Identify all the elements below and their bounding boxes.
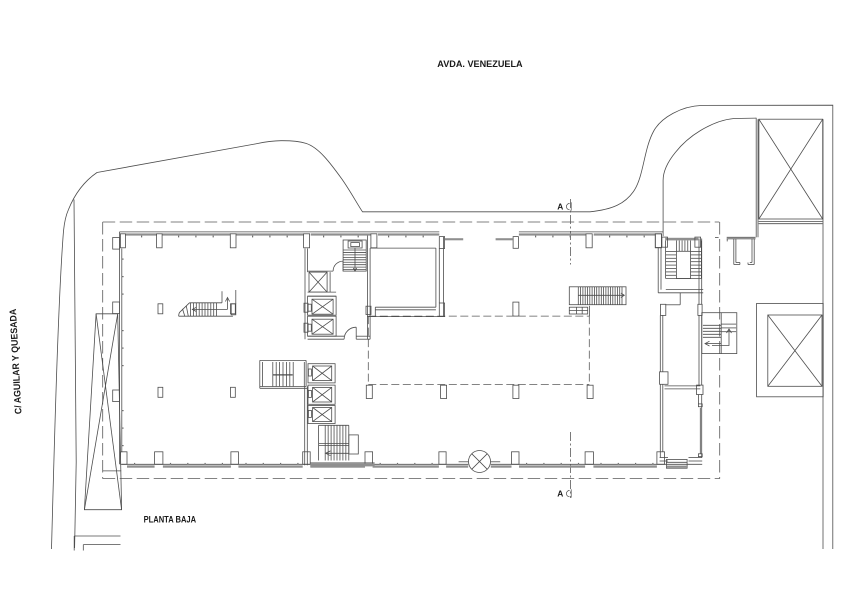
- svg-text:C/ AGUILAR Y QUESADA: C/ AGUILAR Y QUESADA: [8, 308, 25, 414]
- svg-text:AVDA. VENEZUELA: AVDA. VENEZUELA: [437, 59, 522, 70]
- svg-text:A: A: [557, 202, 563, 212]
- svg-text:PLANTA BAJA: PLANTA BAJA: [144, 514, 197, 524]
- svg-text:A: A: [557, 489, 563, 499]
